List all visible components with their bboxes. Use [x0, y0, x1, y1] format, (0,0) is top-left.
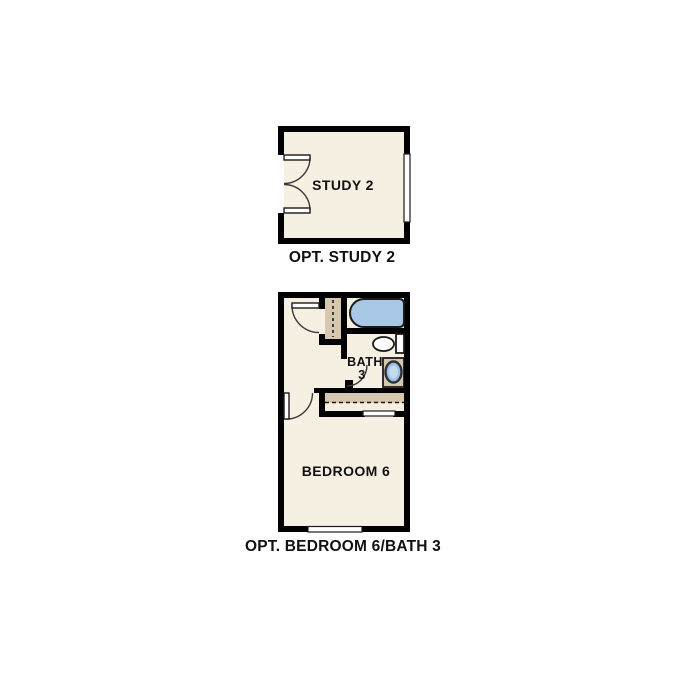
bedroom-closet-icon: [325, 393, 404, 403]
bedroom-bath-plan: BATH 3 BEDROOM 6 OPT. BEDROOM 6/BATH 3: [245, 292, 441, 555]
bath-room-label: BATH: [347, 355, 383, 369]
bath-room-number: 3: [358, 368, 365, 382]
study-room-label: STUDY 2: [312, 177, 374, 193]
study-caption: OPT. STUDY 2: [289, 249, 395, 266]
bathtub-icon: [350, 299, 404, 327]
bedroom-bath-caption: OPT. BEDROOM 6/BATH 3: [245, 538, 441, 555]
bedroom-window-icon: [308, 527, 362, 533]
closet-opening-icon: [363, 411, 395, 416]
study-window-icon: [404, 154, 410, 222]
floorplan-canvas: STUDY 2 OPT. STUDY 2: [0, 0, 687, 687]
sink-basin-icon: [386, 362, 402, 383]
bedroom-room-label: BEDROOM 6: [302, 463, 390, 479]
study-plan: STUDY 2 OPT. STUDY 2: [278, 126, 410, 266]
floorplan-page: STUDY 2 OPT. STUDY 2: [0, 0, 687, 687]
